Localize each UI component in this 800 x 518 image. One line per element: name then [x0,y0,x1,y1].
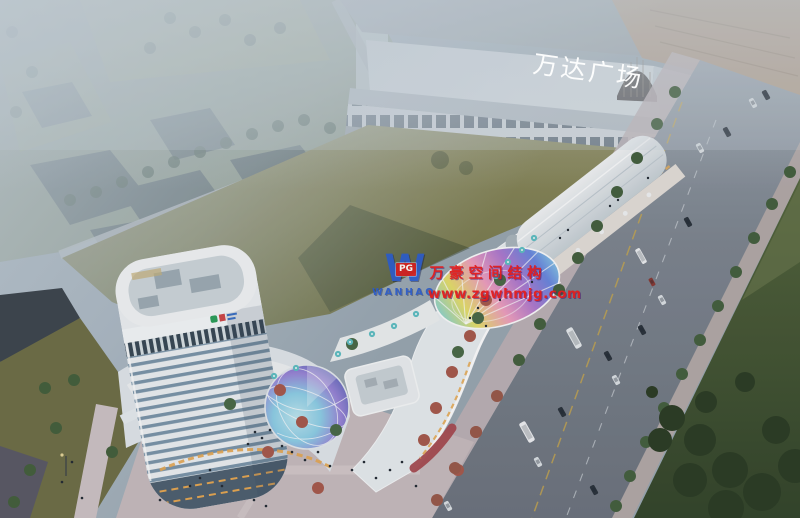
rendering-stage: 万达广场 W PG WANHAO 万豪空间结构 www.zgwhmjg.com [0,0,800,518]
aerial-rendering: 万达广场 [0,0,800,518]
tone-overlay [0,0,800,518]
